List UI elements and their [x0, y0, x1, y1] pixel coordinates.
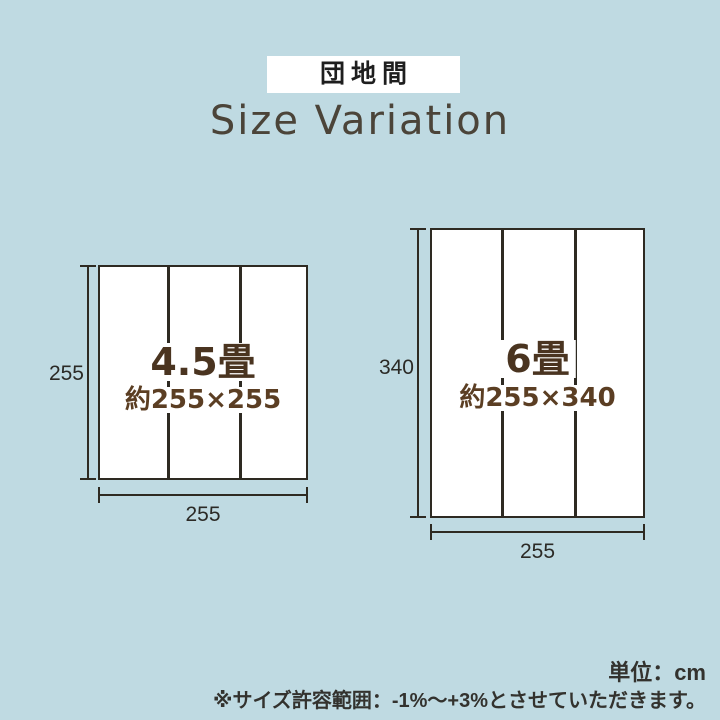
- mat-rect: 6畳 約255×340: [430, 228, 645, 518]
- height-dimension-value: 340: [364, 356, 414, 380]
- width-dimension-value: 255: [430, 540, 645, 564]
- badge-label: 団地間: [314, 62, 413, 87]
- mat-rect: 4.5畳 約255×255: [98, 265, 308, 480]
- dimensions-text: 約255×340: [453, 385, 621, 411]
- size-label: 4.5畳: [144, 343, 261, 381]
- tolerance-note: ※サイズ許容範囲：-1%〜+3%とさせていただきます。: [213, 689, 706, 713]
- background: 団地間 Size Variation 255 4.5畳 約255×255 255…: [0, 0, 720, 720]
- size-label: 6畳: [499, 340, 575, 378]
- danchima-badge: 団地間: [267, 56, 460, 93]
- footnotes: 単位：cm ※サイズ許容範囲：-1%〜+3%とさせていただきます。: [213, 660, 706, 713]
- page-title: Size Variation: [0, 101, 720, 141]
- width-dimension-line: [98, 487, 308, 503]
- width-dimension-value: 255: [98, 503, 308, 527]
- unit-label: 単位：cm: [213, 660, 706, 686]
- height-dimension-value: 255: [34, 362, 84, 386]
- dimensions-text: 約255×255: [119, 387, 287, 413]
- width-dimension-line: [430, 524, 645, 540]
